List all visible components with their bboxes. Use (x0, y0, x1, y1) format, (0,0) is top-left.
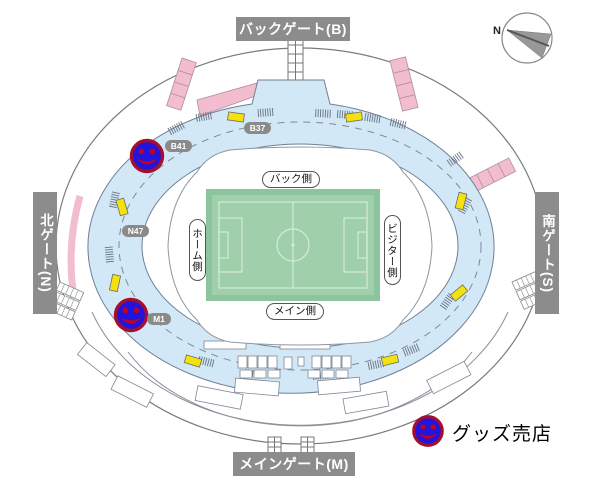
stand-side-main: メイン側 (266, 303, 324, 320)
goods-shop-icon-b41 (132, 141, 163, 172)
legend-goods-shop-label: グッズ売店 (452, 419, 552, 446)
legend-goods-shop-icon (414, 417, 443, 446)
marker-m1: M1 (147, 313, 171, 325)
goods-shop-icon-m1 (116, 300, 147, 331)
stand-side-visitor: ビジター側 (384, 215, 401, 285)
stadium-map: バックゲート(B) メインゲート(M) 北ゲート(N) 南ゲート(S) バック側… (0, 0, 600, 480)
gate-label-back: バックゲート(B) (236, 17, 350, 41)
stand-side-back: バック側 (262, 171, 320, 188)
pitch (206, 189, 380, 301)
gate-label-north: 北ゲート(N) (33, 192, 57, 314)
compass (502, 13, 552, 63)
marker-b41: B41 (165, 140, 192, 152)
gate-label-south: 南ゲート(S) (535, 192, 559, 314)
stadium-svg (0, 0, 600, 480)
gate-label-main: メインゲート(M) (233, 452, 355, 476)
compass-north-label: N (493, 25, 501, 37)
marker-b37: B37 (244, 122, 271, 134)
stand-side-home: ホーム側 (189, 219, 206, 281)
marker-n47: N47 (122, 225, 149, 237)
